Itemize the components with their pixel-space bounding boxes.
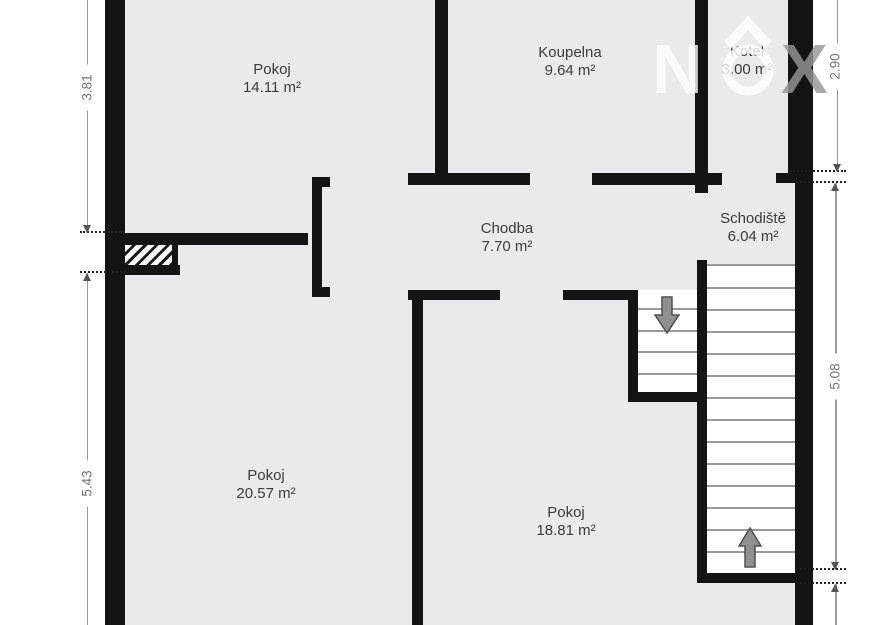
stairs-up-arrow-icon [738,527,762,568]
room-name: Schodiště [688,210,818,228]
wall-stair-small-left [628,290,638,402]
room-area: 14.11 m² [207,79,337,97]
room-name: Koupelna [505,44,635,62]
room-label-pokoj-20: Pokoj 20.57 m² [201,467,331,504]
dimension-label-508: 5.08 [827,354,844,400]
wall-chodba-bottom-left [408,290,500,300]
room-label-koupelna: Koupelna 9.64 m² [505,44,635,81]
wall-stair-bottom [697,573,795,583]
chimney-ledge [125,265,180,275]
stair-tread-line [707,485,795,487]
door-jamb-flange-bottom [312,287,330,297]
room-name: Pokoj [201,467,331,485]
dim-arrow-icon [831,562,839,570]
dim-arrow-icon [83,273,91,281]
stair-tread-line [707,375,795,377]
room-label-pokoj-18: Pokoj 18.81 m² [501,504,631,541]
stairs-down-arrow-icon [654,296,680,334]
room-area: 20.57 m² [201,485,331,503]
wall-outer-right-bottom [795,183,813,625]
room-name: Pokoj [501,504,631,522]
door-jamb-flange-top [312,177,330,187]
dimension-label-543: 5.43 [79,461,96,507]
wall-chodba-top-left [408,173,530,185]
room-name: Chodba [442,220,572,238]
stair-tread-line [707,463,795,465]
dim-arrow-icon [831,584,839,592]
room-label-chodba: Chodba 7.70 m² [442,220,572,257]
room-area: 18.81 m² [501,522,631,540]
dim-arrow-icon [83,225,91,233]
room-label-pokoj-14: Pokoj 14.11 m² [207,61,337,98]
wall-outer-left [105,0,125,625]
stair-tread-line [707,397,795,399]
wall-pokoj14-bottom [123,233,308,245]
floorplan-canvas: Pokoj 14.11 m² Koupelna 9.64 m² Kotel 3.… [0,0,894,625]
room-label-schodiste: Schodiště 6.04 m² [688,210,818,247]
wall-stair-main-left [697,260,707,582]
stair-tread-line [638,373,697,375]
room-name: Pokoj [207,61,337,79]
room-name: Kotel [682,43,812,61]
room-area: 9.64 m² [505,62,635,80]
room-area: 3.00 m² [682,61,812,79]
wall-pokoj20-pokoj18 [412,300,423,625]
stair-tread-line [707,353,795,355]
dimension-line-left-bottom [87,273,89,625]
room-area: 6.04 m² [688,228,818,246]
dimension-line-left-top [87,0,89,233]
wall-chodba-top-mid [592,173,722,185]
wall-outer-right-top [788,0,813,183]
dim-arrow-icon [831,183,839,191]
room-area: 7.70 m² [442,238,572,256]
stair-tread-line [707,331,795,333]
wall-pokoj-koupelna [435,0,448,183]
chimney-hatch [125,245,172,265]
stair-tread-line [707,441,795,443]
stair-tread-line [707,309,795,311]
dimension-label-381: 3.81 [79,65,96,111]
stair-tread-line [707,287,795,289]
room-label-kotel: Kotel 3.00 m² [682,43,812,80]
stair-tread-line [707,507,795,509]
dimension-label-290: 2.90 [827,44,844,90]
stair-tread-line [707,419,795,421]
wall-koupelna-kotel [695,0,708,193]
door-jamb-column [312,177,322,297]
stair-tread-line [638,351,697,353]
wall-stair-small-bottom [628,392,698,402]
wall-chodba-bottom-right [563,290,637,300]
dim-arrow-icon [833,164,841,172]
